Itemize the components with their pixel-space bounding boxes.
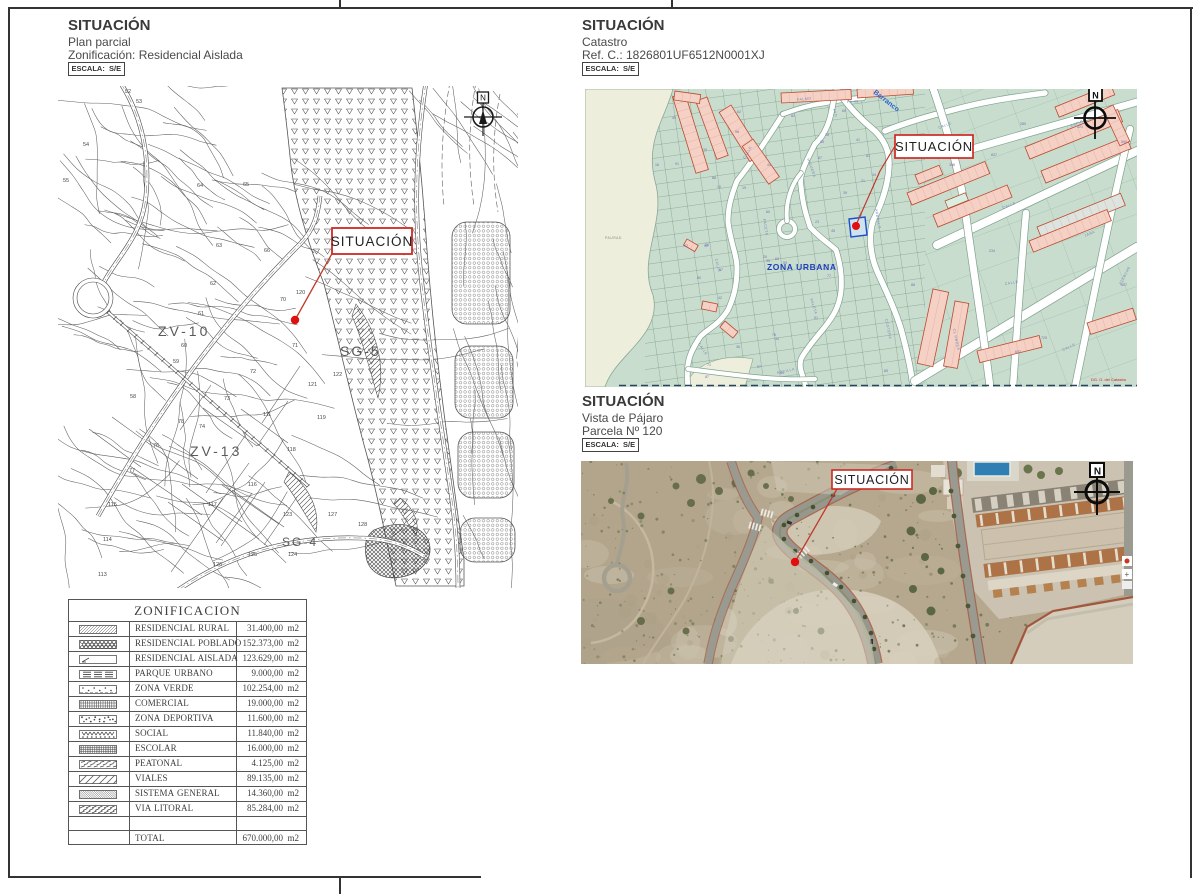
svg-text:60: 60: [766, 210, 770, 214]
svg-text:64: 64: [197, 183, 203, 189]
svg-text:70: 70: [280, 297, 286, 303]
svg-text:61: 61: [198, 311, 204, 317]
svg-text:16: 16: [655, 163, 659, 167]
svg-text:23: 23: [815, 220, 819, 224]
svg-text:+: +: [1125, 570, 1130, 579]
svg-text:SITUACIÓN: SITUACIÓN: [895, 139, 973, 154]
svg-text:42: 42: [684, 244, 688, 248]
svg-text:91: 91: [675, 162, 679, 166]
svg-text:SG-5: SG-5: [340, 343, 381, 359]
svg-text:PAURAD: PAURAD: [605, 236, 622, 240]
svg-text:121: 121: [308, 382, 317, 388]
svg-text:88: 88: [712, 176, 716, 180]
svg-text:35: 35: [766, 259, 770, 263]
svg-text:59: 59: [173, 359, 179, 365]
svg-text:837: 837: [991, 153, 997, 157]
svg-text:78: 78: [178, 419, 184, 425]
svg-text:123: 123: [283, 512, 292, 518]
svg-text:57: 57: [719, 268, 723, 272]
svg-text:39: 39: [703, 148, 707, 152]
svg-text:74: 74: [199, 424, 205, 430]
svg-text:81: 81: [866, 154, 870, 158]
svg-text:280: 280: [1020, 122, 1026, 126]
svg-text:PA 46: PA 46: [847, 99, 859, 104]
svg-text:69: 69: [842, 109, 846, 113]
svg-text:122: 122: [333, 372, 342, 378]
svg-text:60: 60: [181, 343, 187, 349]
svg-text:54: 54: [83, 142, 89, 148]
svg-text:28: 28: [825, 133, 829, 137]
svg-text:117: 117: [208, 502, 217, 508]
svg-text:51: 51: [814, 316, 818, 320]
svg-text:126: 126: [213, 562, 222, 568]
svg-text:125: 125: [248, 552, 257, 558]
svg-text:602: 602: [1015, 350, 1021, 354]
svg-text:ZV-13: ZV-13: [190, 443, 242, 459]
svg-text:34: 34: [775, 337, 779, 341]
svg-text:21: 21: [861, 179, 865, 183]
svg-text:590: 590: [1121, 140, 1127, 144]
svg-text:127: 127: [328, 512, 337, 518]
svg-text:113: 113: [98, 572, 107, 578]
svg-text:85: 85: [884, 369, 888, 373]
svg-text:729: 729: [1041, 336, 1047, 340]
svg-text:234: 234: [989, 249, 995, 253]
svg-text:71: 71: [292, 343, 298, 349]
svg-text:SG-4: SG-4: [282, 535, 318, 549]
svg-text:114: 114: [103, 537, 112, 543]
svg-text:82: 82: [791, 114, 795, 118]
svg-text:DG. G. del Catastro: DG. G. del Catastro: [1091, 377, 1127, 382]
svg-text:116: 116: [248, 482, 257, 488]
svg-text:N: N: [480, 94, 486, 103]
svg-text:124: 124: [288, 552, 297, 558]
svg-text:62: 62: [210, 281, 216, 287]
svg-text:111: 111: [263, 412, 271, 418]
svg-text:521: 521: [1077, 125, 1083, 129]
svg-text:69: 69: [775, 257, 779, 261]
svg-text:77: 77: [827, 274, 831, 278]
svg-text:55: 55: [63, 178, 69, 184]
svg-text:39: 39: [843, 191, 847, 195]
svg-text:71: 71: [707, 363, 711, 367]
svg-text:N: N: [1092, 91, 1099, 101]
svg-text:97: 97: [757, 365, 761, 369]
svg-text:807: 807: [1121, 283, 1127, 287]
svg-text:120: 120: [296, 290, 305, 296]
svg-text:63: 63: [216, 243, 222, 249]
svg-text:44: 44: [767, 163, 771, 167]
svg-text:88: 88: [911, 283, 915, 287]
svg-text:53: 53: [136, 99, 142, 105]
svg-text:308: 308: [949, 163, 955, 167]
svg-text:45: 45: [831, 229, 835, 233]
svg-text:58: 58: [130, 394, 136, 400]
svg-text:59: 59: [783, 261, 787, 265]
svg-text:77: 77: [129, 468, 135, 474]
svg-text:66: 66: [264, 248, 270, 254]
svg-text:52: 52: [125, 89, 131, 95]
svg-text:19: 19: [742, 186, 746, 190]
svg-text:128: 128: [358, 522, 367, 528]
svg-text:80: 80: [697, 276, 701, 280]
svg-text:40: 40: [672, 116, 676, 120]
svg-text:26: 26: [705, 243, 709, 247]
svg-text:73: 73: [224, 396, 230, 402]
svg-text:85: 85: [820, 140, 824, 144]
svg-text:60: 60: [780, 371, 784, 375]
svg-text:34: 34: [872, 173, 876, 177]
svg-text:115: 115: [108, 502, 117, 508]
svg-text:87: 87: [705, 375, 709, 379]
svg-text:98: 98: [735, 130, 739, 134]
svg-text:118: 118: [287, 447, 296, 453]
svg-text:SITUACIÓN: SITUACIÓN: [834, 472, 909, 487]
svg-text:76: 76: [772, 333, 776, 337]
svg-text:42: 42: [718, 296, 722, 300]
svg-text:SITUACIÓN: SITUACIÓN: [331, 234, 414, 249]
svg-text:76: 76: [153, 443, 159, 449]
svg-text:ZV-10: ZV-10: [158, 323, 210, 339]
svg-text:36: 36: [736, 345, 740, 349]
svg-text:41: 41: [856, 138, 860, 142]
svg-text:119: 119: [317, 415, 326, 421]
svg-text:N: N: [1094, 467, 1101, 478]
svg-text:72: 72: [250, 369, 256, 375]
svg-text:65: 65: [243, 182, 249, 188]
svg-text:62: 62: [737, 110, 741, 114]
svg-text:10: 10: [717, 185, 721, 189]
svg-text:60: 60: [823, 267, 827, 271]
svg-text:67: 67: [818, 156, 822, 160]
